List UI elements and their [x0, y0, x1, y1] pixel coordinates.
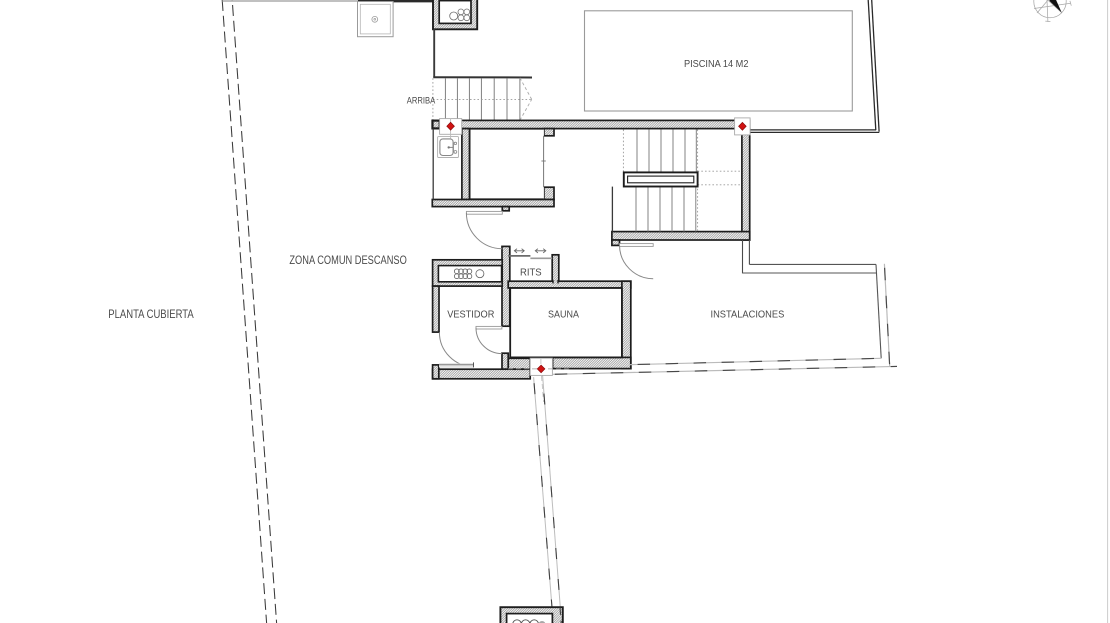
svg-text:RITS: RITS — [520, 268, 542, 279]
svg-text:PISCINA 14 M2: PISCINA 14 M2 — [684, 59, 749, 70]
svg-text:ARRIBA: ARRIBA — [407, 96, 436, 106]
svg-text:SAUNA: SAUNA — [548, 310, 579, 321]
svg-text:INSTALACIONES: INSTALACIONES — [711, 310, 785, 321]
svg-text:VESTIDOR: VESTIDOR — [447, 310, 494, 321]
svg-text:ZONA COMUN DESCANSO: ZONA COMUN DESCANSO — [289, 254, 406, 267]
svg-text:PLANTA CUBIERTA: PLANTA CUBIERTA — [108, 308, 194, 321]
